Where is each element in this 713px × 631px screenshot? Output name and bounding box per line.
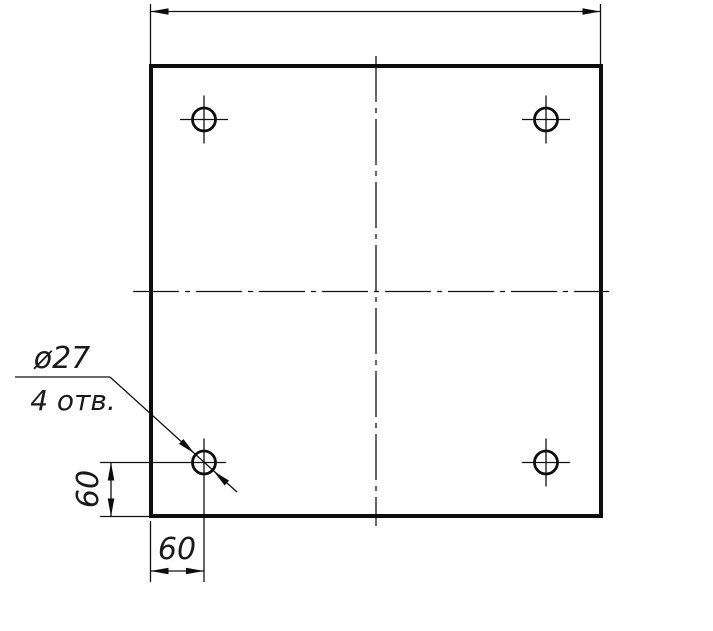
offset-vertical-value: 60 [71, 470, 106, 508]
arrowhead-up [108, 463, 115, 481]
hole-count-label: 4 отв. [30, 384, 116, 417]
plate-drawing: ø27 4 отв. 60 60 [0, 0, 713, 631]
dimension-overall-width [151, 4, 601, 64]
hole-top-left [180, 96, 228, 144]
dimension-hole-offset-vertical: 60 [71, 463, 149, 517]
hole-bottom-right [522, 439, 570, 487]
arrowhead-left [151, 8, 169, 15]
technical-drawing-canvas: ø27 4 отв. 60 60 [0, 0, 713, 631]
hole-diameter-label: ø27 [33, 341, 91, 376]
arrowhead-down [108, 499, 115, 517]
arrowhead-right [186, 568, 204, 575]
offset-horizontal-value: 60 [158, 532, 196, 567]
arrowhead-right [583, 8, 601, 15]
dimension-hole-offset-horizontal: 60 [151, 521, 205, 582]
hole-top-right [522, 96, 570, 144]
arrowhead-left [151, 568, 169, 575]
